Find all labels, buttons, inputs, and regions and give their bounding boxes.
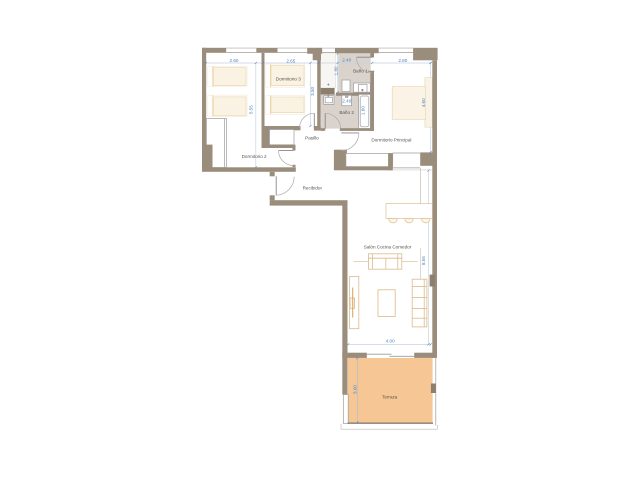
svg-text:Baño 2: Baño 2 [339,110,354,115]
svg-text:Pasillo: Pasillo [305,135,319,140]
svg-text:1.60: 1.60 [360,106,365,115]
svg-text:5.55: 5.55 [249,105,254,114]
svg-text:4.60: 4.60 [421,98,426,107]
svg-text:3.50: 3.50 [310,86,315,95]
svg-text:Salón Cocina Comedor: Salón Cocina Comedor [364,244,412,249]
svg-text:1.80: 1.80 [334,66,339,75]
svg-text:2.40: 2.40 [342,99,351,104]
svg-text:Dormitorio Principal: Dormitorio Principal [371,138,411,143]
svg-text:2.80: 2.80 [398,58,407,63]
svg-text:Recibidor: Recibidor [303,185,323,190]
svg-text:Dormitorio 2: Dormitorio 2 [242,154,267,159]
svg-text:3.00: 3.00 [352,385,357,394]
svg-text:Terraza: Terraza [382,394,398,399]
svg-text:2.60: 2.60 [230,58,239,63]
svg-text:4.00: 4.00 [386,339,395,344]
svg-text:2.65: 2.65 [286,58,295,63]
svg-text:2.40: 2.40 [342,58,351,63]
svg-text:Baño 1: Baño 1 [353,69,368,74]
svg-text:Dormitorio 3: Dormitorio 3 [276,77,301,82]
svg-text:8.55: 8.55 [421,256,426,265]
